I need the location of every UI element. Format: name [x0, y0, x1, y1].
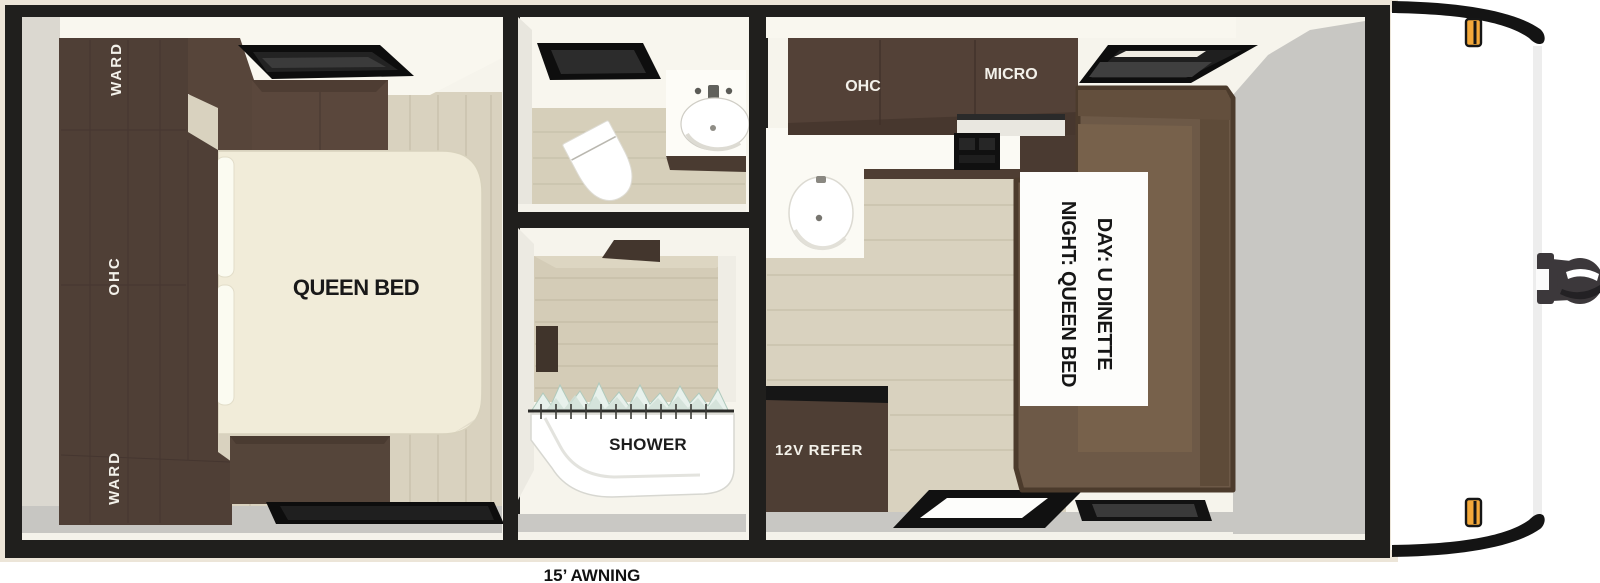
svg-text:SHOWER: SHOWER [609, 435, 687, 454]
svg-text:15’ AWNING: 15’ AWNING [544, 566, 641, 583]
svg-text:QUEEN BED: QUEEN BED [293, 275, 419, 300]
svg-text:OHC: OHC [106, 256, 123, 295]
svg-text:WARD: WARD [106, 451, 123, 505]
svg-text:MICRO: MICRO [984, 66, 1037, 83]
svg-text:OHC: OHC [845, 78, 881, 95]
svg-text:WARD: WARD [108, 42, 125, 96]
svg-text:DAY: U DINETTE: DAY: U DINETTE [1093, 218, 1115, 370]
svg-text:NIGHT: QUEEN BED: NIGHT: QUEEN BED [1057, 201, 1079, 387]
svg-text:12V REFER: 12V REFER [775, 442, 863, 459]
